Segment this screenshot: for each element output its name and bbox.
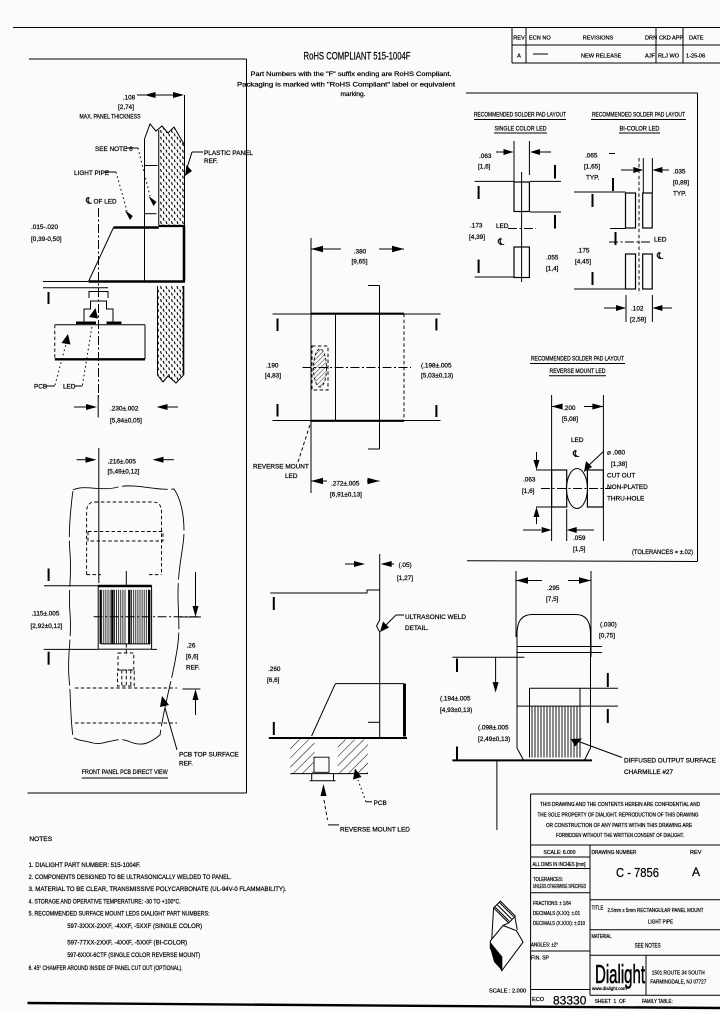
svg-text:C - 7856: C - 7856 [616, 865, 659, 880]
svg-text:FRACTIONS: ± 1/64: FRACTIONS: ± 1/64 [533, 901, 571, 907]
svg-text:.055: .055 [546, 255, 559, 262]
svg-text:DATE: DATE [689, 36, 704, 42]
svg-text:NOTES: NOTES [29, 836, 52, 843]
svg-text:.063: .063 [479, 153, 492, 160]
svg-text:[0,39-0,50]: [0,39-0,50] [31, 236, 62, 243]
svg-text:ALL DIMS IN INCHES [mm]: ALL DIMS IN INCHES [mm] [533, 862, 586, 868]
svg-text:DRN: DRN [645, 36, 657, 42]
svg-text:THRU-HOLE: THRU-HOLE [607, 496, 644, 503]
svg-text:REVERSE MOUNT: REVERSE MOUNT [253, 464, 309, 471]
svg-text:REVISIONS: REVISIONS [583, 36, 614, 42]
svg-text:[2,92±0,12]: [2,92±0,12] [31, 623, 63, 630]
svg-text:ANGLES: ±2°: ANGLES: ±2° [531, 943, 558, 949]
svg-text:.380: .380 [354, 249, 367, 256]
svg-text:.108: .108 [123, 95, 136, 102]
svg-text:UNLESS OTHERWISE SPECIFIED: UNLESS OTHERWISE SPECIFIED [533, 884, 586, 890]
svg-text:.065: .065 [585, 153, 598, 160]
svg-text:[0,89]: [0,89] [673, 180, 689, 187]
svg-text:℄: ℄ [656, 251, 664, 262]
svg-text:(TOLERANCES = ±.02): (TOLERANCES = ±.02) [632, 549, 693, 556]
svg-text:PCB: PCB [34, 384, 47, 391]
svg-text:[5,08]: [5,08] [562, 416, 578, 423]
svg-text:LED: LED [63, 384, 76, 391]
svg-text:FAMILY TABLE:: FAMILY TABLE: [642, 999, 673, 1005]
svg-text:Part Numbers with the "F" suff: Part Numbers with the "F" suffix ending … [251, 71, 452, 78]
svg-text:.190: .190 [266, 363, 279, 370]
svg-text:[0,75]: [0,75] [599, 633, 615, 640]
svg-text:[2,74]: [2,74] [118, 104, 134, 111]
svg-text:1. DIALIGHT PART NUMBER: 515-1: 1. DIALIGHT PART NUMBER: 515-1004F. [29, 862, 141, 869]
svg-text:Packaging is marked with "RoHS: Packaging is marked with "RoHS Compliant… [237, 81, 455, 88]
svg-text:REVERSE MOUNT LED: REVERSE MOUNT LED [340, 827, 410, 834]
svg-text:597-77XX-2XXF, -4XXF, -5XXF (B: 597-77XX-2XXF, -4XXF, -5XXF (BI-COLOR) [67, 939, 187, 946]
svg-text:LIGHT PIPE: LIGHT PIPE [74, 170, 109, 177]
svg-text:CKD APP: CKD APP [659, 36, 684, 42]
svg-text:[4,39]: [4,39] [469, 234, 485, 241]
svg-text:597-3XXX-2XXF, -4XXF, -5XXF (S: 597-3XXX-2XXF, -4XXF, -5XXF (SINGLE COLO… [67, 923, 202, 930]
svg-text:[5,84±0,05]: [5,84±0,05] [110, 418, 142, 425]
svg-text:ECN NO: ECN NO [529, 36, 551, 42]
svg-text:.063: .063 [523, 477, 536, 484]
svg-text:.295: .295 [547, 585, 560, 592]
svg-text:TYP.: TYP. [586, 175, 600, 182]
svg-text:FARMINGDALE, NJ 07727: FARMINGDALE, NJ 07727 [650, 979, 706, 985]
svg-text:[4,83]: [4,83] [265, 373, 281, 380]
svg-text:LED: LED [571, 437, 584, 444]
svg-text:.260: .260 [268, 666, 281, 673]
svg-text:RoHS COMPLIANT 515-1004F: RoHS COMPLIANT 515-1004F [304, 51, 411, 63]
svg-text:(.198±.005: (.198±.005 [421, 363, 452, 370]
svg-text:A: A [692, 865, 700, 879]
svg-text:NEW RELEASE: NEW RELEASE [581, 54, 622, 60]
svg-text:[1,6]: [1,6] [522, 488, 535, 495]
svg-text:597-6XXX-6CTF (SINGLE COLOR RE: 597-6XXX-6CTF (SINGLE COLOR REVERSE MOUN… [67, 952, 200, 959]
svg-text:SCALE: 6.000: SCALE: 6.000 [544, 850, 576, 856]
svg-text:DETAIL.: DETAIL. [405, 625, 429, 632]
svg-text:marking.: marking. [341, 91, 366, 98]
svg-text:THIS DRAWING AND THE CONTENTS: THIS DRAWING AND THE CONTENTS HEREIN ARE… [540, 802, 700, 808]
svg-text:.216±.005: .216±.005 [108, 459, 137, 466]
svg-text:CHARMILLE #27: CHARMILLE #27 [624, 769, 673, 776]
svg-text:(.030): (.030) [600, 622, 617, 629]
svg-text:(.194±.005: (.194±.005 [440, 696, 471, 703]
svg-text:TYP.: TYP. [673, 191, 687, 198]
svg-text:[1,65]: [1,65] [584, 164, 600, 171]
svg-text:℄: ℄ [572, 449, 580, 460]
svg-text:3. MATERIAL TO BE CLEAR, TRANS: 3. MATERIAL TO BE CLEAR, TRANSMISSIVE PO… [29, 886, 287, 893]
svg-text:REF.: REF. [179, 761, 193, 768]
svg-text:[4,93±0,13): [4,93±0,13) [440, 707, 472, 714]
svg-text:REVERSE MOUNT LED: REVERSE MOUNT LED [550, 368, 606, 375]
svg-text:SINGLE COLOR LED: SINGLE COLOR LED [495, 126, 547, 133]
svg-text:[1,27]: [1,27] [397, 575, 413, 582]
svg-text:RECOMMENDED SOLDER PAD LAYOUT: RECOMMENDED SOLDER PAD LAYOUT [531, 356, 624, 363]
svg-text:DECIMALS (X.XXX): ±.010: DECIMALS (X.XXX): ±.010 [533, 921, 585, 927]
svg-text:PCB TOP SURFACE: PCB TOP SURFACE [179, 752, 239, 759]
svg-text:.272±.005: .272±.005 [331, 481, 360, 488]
svg-text:[1,6]: [1,6] [478, 164, 491, 171]
svg-text:LED: LED [654, 237, 667, 244]
svg-text:℄ OF LED: ℄ OF LED [85, 196, 117, 206]
svg-text:⌀ .060: ⌀ .060 [607, 450, 626, 457]
svg-text:[1,38]: [1,38] [611, 461, 627, 468]
svg-text:DIFFUSED OUTPUT SURFACE: DIFFUSED OUTPUT SURFACE [624, 758, 716, 765]
svg-text:[5,03±0,13): [5,03±0,13) [421, 373, 453, 380]
svg-text:MAX. PANEL THICKNESS: MAX. PANEL THICKNESS [80, 114, 141, 121]
svg-text:.059: .059 [573, 535, 586, 542]
svg-text:1-25-06: 1-25-06 [686, 54, 705, 60]
svg-text:BI-COLOR LED: BI-COLOR LED [620, 126, 660, 133]
svg-text:4. STORAGE AND OPERATIVE TEMPE: 4. STORAGE AND OPERATIVE TEMPERATURE: -3… [29, 898, 181, 906]
svg-text:REV: REV [690, 850, 702, 856]
svg-text:[6,91±0,13]: [6,91±0,13] [330, 492, 362, 499]
svg-text:5. RECOMMENDED SURFACE MOUNT L: 5. RECOMMENDED SURFACE MOUNT LEDS DIALIG… [29, 911, 210, 918]
svg-text:.115±.005: .115±.005 [32, 611, 60, 618]
svg-text:CUT OUT: CUT OUT [607, 473, 635, 480]
svg-text:PLASTIC PANEL: PLASTIC PANEL [204, 150, 253, 157]
svg-text:RECOMMENDED SOLDER PAD LAYOUT: RECOMMENDED SOLDER PAD LAYOUT [474, 112, 566, 119]
svg-text:ULTRASONIC WELD: ULTRASONIC WELD [405, 614, 466, 621]
svg-text:FIN. SP: FIN. SP [531, 956, 549, 962]
svg-text:(.05): (.05) [399, 562, 412, 569]
svg-text:2. COMPONENTS DESIGNED TO BE U: 2. COMPONENTS DESIGNED TO BE ULTRASONICA… [29, 874, 232, 881]
svg-text:FORBIDDEN WITHOUT THE WRITTEN: FORBIDDEN WITHOUT THE WRITTEN CONSENT OF… [556, 833, 684, 839]
svg-text:SEE NOTE 6: SEE NOTE 6 [95, 146, 133, 153]
svg-text:[2,49±0,13): [2,49±0,13) [478, 736, 510, 743]
svg-text:A: A [517, 54, 521, 60]
svg-text:.230±.002: .230±.002 [110, 406, 139, 413]
svg-text:LIGHT PIPE: LIGHT PIPE [648, 920, 673, 926]
svg-text:SCALE : 2.000: SCALE : 2.000 [489, 989, 526, 995]
svg-text:REV: REV [513, 36, 525, 42]
svg-text:NON-PLATED: NON-PLATED [607, 484, 648, 491]
svg-text:AJF: AJF [645, 54, 656, 60]
svg-text:[6,6]: [6,6] [267, 677, 280, 684]
svg-text:83330: 83330 [553, 994, 587, 1008]
svg-text:DECIMALS (X.XX): ±.01: DECIMALS (X.XX): ±.01 [533, 911, 580, 917]
svg-text:[5,49±0,12]: [5,49±0,12] [108, 469, 140, 476]
svg-text:.102: .102 [631, 306, 644, 313]
svg-text:LED: LED [496, 223, 509, 230]
svg-text:Dialight: Dialight [595, 959, 645, 989]
svg-text:FRONT PANEL PCB DIRECT VIEW: FRONT PANEL PCB DIRECT VIEW [82, 769, 169, 776]
svg-text:ECO: ECO [532, 997, 545, 1003]
svg-text:TITLE: TITLE [592, 906, 604, 912]
svg-text:℄: ℄ [497, 237, 505, 248]
svg-text:1501 ROUTE 34 SOUTH: 1501 ROUTE 34 SOUTH [652, 971, 705, 977]
svg-text:THE SOLE PROPERTY OF DIALIGHT.: THE SOLE PROPERTY OF DIALIGHT. REPRODUCT… [538, 812, 699, 818]
svg-text:(.098±.005: (.098±.005 [478, 725, 509, 732]
svg-text:.200: .200 [563, 405, 576, 412]
svg-text:.26: .26 [187, 643, 196, 650]
svg-text:6. 45° CHAMFER AROUND INSIDE O: 6. 45° CHAMFER AROUND INSIDE OF PANEL CU… [29, 964, 183, 972]
svg-text:[6,6]: [6,6] [186, 654, 199, 661]
svg-text:SHEET 1 OF: SHEET 1 OF [595, 999, 627, 1005]
svg-text:LED: LED [285, 473, 298, 480]
svg-text:MATERIAL: MATERIAL [592, 934, 612, 940]
svg-text:RLJ WO: RLJ WO [658, 54, 680, 60]
svg-text:.035: .035 [673, 169, 686, 176]
svg-text:[4,45]: [4,45] [575, 259, 591, 266]
svg-text:www.dialight.com: www.dialight.com [592, 986, 636, 991]
svg-text:REF.: REF. [204, 158, 218, 165]
svg-text:[1,5]: [1,5] [573, 546, 586, 553]
svg-text:[7,5]: [7,5] [546, 596, 559, 603]
svg-text:PCB: PCB [374, 800, 387, 807]
svg-text:TOLERANCES:: TOLERANCES: [533, 877, 563, 883]
svg-text:.175: .175 [577, 248, 590, 255]
svg-text:.015-.020: .015-.020 [31, 224, 58, 231]
svg-text:OR CONSTRUCTION OF ANY PARTS W: OR CONSTRUCTION OF ANY PARTS WITHIN THIS… [546, 823, 692, 829]
svg-text:[9,65]: [9,65] [352, 259, 368, 266]
svg-text:[1,4]: [1,4] [546, 266, 559, 273]
svg-text:REF.: REF. [186, 665, 200, 672]
svg-text:[2,59]: [2,59] [630, 317, 646, 324]
svg-text:SEE NOTES: SEE NOTES [635, 943, 661, 950]
svg-text:RECOMMENDED SOLDER PAD LAYOUT: RECOMMENDED SOLDER PAD LAYOUT [592, 112, 685, 119]
svg-text:DRAWING NUMBER: DRAWING NUMBER [592, 850, 637, 856]
svg-text:2.5mm x 5mm RECTANGULAR PANEL: 2.5mm x 5mm RECTANGULAR PANEL MOUNT [608, 908, 704, 914]
svg-text:.173: .173 [470, 223, 483, 230]
